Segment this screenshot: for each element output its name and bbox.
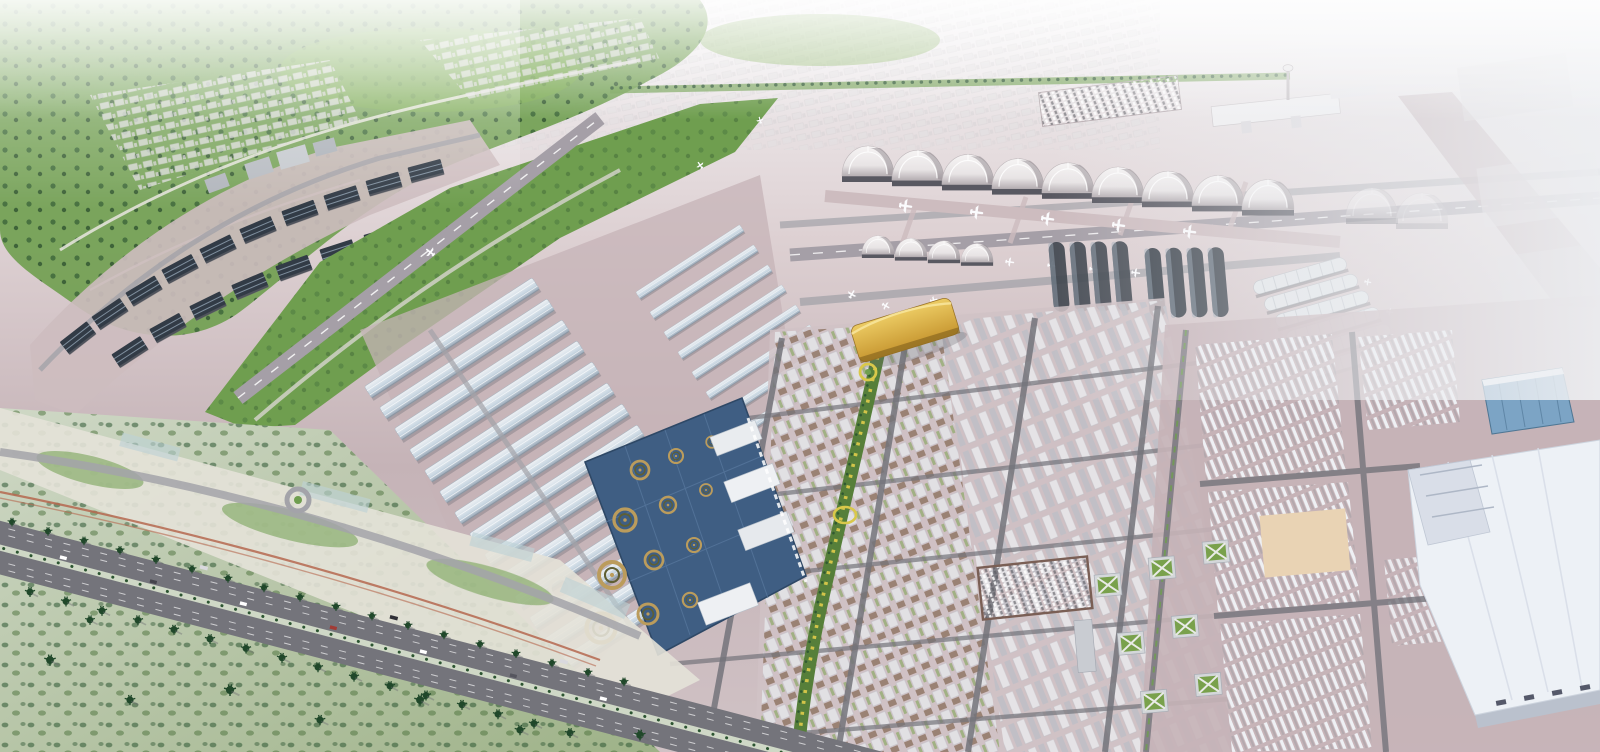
topleft-haze [0, 0, 520, 210]
sand-plaza [1259, 508, 1350, 577]
airport-city-aerial-render [0, 0, 1600, 752]
aerial-render-viewport [0, 0, 1600, 752]
canopy-block [1220, 614, 1372, 752]
parking-structure [978, 556, 1093, 619]
